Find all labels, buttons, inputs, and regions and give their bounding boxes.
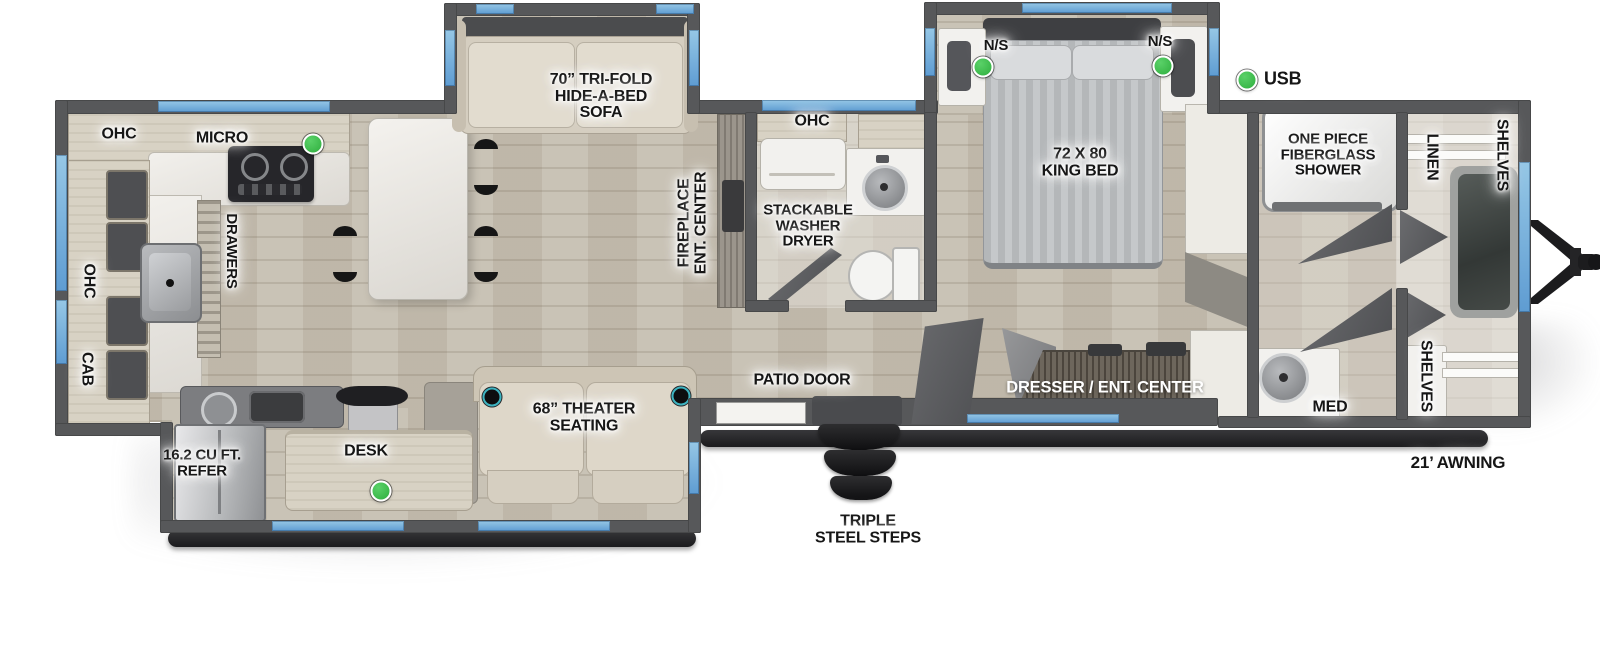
pillow [1072, 45, 1154, 80]
desk-chair [336, 386, 408, 406]
cupholder-icon [483, 388, 502, 407]
wall-bottom [55, 423, 173, 436]
linen-shelf [1402, 134, 1506, 144]
label-theater-seating: 68” THEATER SEATING [533, 401, 635, 434]
window [925, 28, 935, 76]
wardrobe-mirror [1458, 174, 1510, 310]
label-cab: CAB [78, 352, 95, 386]
drain-icon [1279, 373, 1288, 382]
bedroom-divider-wall [1247, 112, 1259, 418]
linen-shelf [1402, 150, 1506, 160]
floorplan-canvas: OHC MICRO OHC CAB DRAWERS 70” TRI-FOLD H… [0, 0, 1600, 652]
window [967, 414, 1119, 423]
window [1519, 162, 1530, 312]
bath-wall [745, 112, 757, 312]
label-linen: LINEN [1423, 133, 1440, 180]
island-chair [474, 226, 498, 282]
window [56, 300, 67, 364]
window [272, 521, 404, 531]
front-bath-wall [1396, 288, 1408, 420]
label-micro: MICRO [196, 131, 248, 148]
usb-indicator [303, 134, 324, 155]
usb-indicator [1153, 56, 1174, 77]
label-med: MED [1313, 400, 1348, 417]
bath-wall [745, 300, 789, 312]
step-platform [812, 396, 902, 426]
front-bath-sink [1259, 353, 1309, 403]
nightstand-inset [1171, 39, 1195, 97]
bath-wall [845, 300, 937, 312]
usb-indicator [371, 481, 392, 502]
steel-step [830, 476, 892, 500]
label-refer: 16.2 CU FT. REFER [163, 447, 241, 478]
label-fireplace-ent-center: FIREPLACE ENT. CENTER [676, 172, 709, 275]
dresser-decor [1088, 344, 1122, 356]
burner-icon [241, 153, 269, 181]
steel-step [824, 450, 896, 476]
window [656, 4, 694, 14]
stove-grate [238, 184, 302, 195]
island-chair [474, 139, 498, 195]
window [1022, 3, 1172, 13]
label-shower: ONE PIECE FIBERGLASS SHOWER [1281, 132, 1376, 179]
door-slide-wall [160, 520, 701, 533]
window [689, 30, 699, 86]
bath-corner-cabinet [858, 114, 927, 150]
sink-cover-icon [201, 392, 237, 428]
drain-icon [880, 183, 888, 191]
label-drawers: DRAWERS [223, 213, 239, 288]
island-chair [333, 226, 357, 282]
theater-footrest [592, 470, 684, 504]
window [762, 100, 916, 111]
cabinet-inset [106, 350, 148, 400]
usb-legend-dot [1237, 70, 1258, 91]
label-ohc-bath: OHC [795, 114, 830, 131]
front-bath-wall [1396, 112, 1408, 210]
label-ohc-kitchen-top: OHC [102, 127, 137, 144]
dresser-decor [1146, 342, 1186, 356]
burner-icon [280, 153, 308, 181]
label-usb-legend: USB [1264, 70, 1301, 89]
window [158, 101, 330, 112]
window [476, 4, 514, 14]
nightstand-inset [947, 41, 971, 91]
front-shelf [1442, 352, 1520, 362]
window [478, 521, 610, 531]
window [56, 155, 67, 291]
toilet-bowl [848, 250, 898, 302]
slide-counter [180, 386, 344, 428]
label-shelves-bottom: SHELVES [1417, 340, 1434, 412]
theater-footrest [487, 470, 579, 504]
label-dresser-ent-center: DRESSER / ENT. CENTER [1006, 379, 1204, 396]
stackable-washer-dryer [760, 138, 846, 190]
bed-headboard [983, 18, 1161, 42]
label-shelves-top: SHELVES [1493, 119, 1510, 191]
usb-indicator [973, 57, 994, 78]
label-awning: 21’ AWNING [1411, 454, 1506, 472]
label-desk: DESK [344, 444, 388, 461]
faucet-icon [166, 279, 174, 287]
griddle-icon [249, 391, 305, 423]
bath-sink [862, 165, 908, 211]
hitch-tongue-icon [1524, 216, 1600, 308]
kitchen-sink [140, 243, 202, 323]
label-nightstand-right: N/S [1148, 34, 1172, 50]
cabinet-inset [106, 170, 148, 220]
label-ohc-kitchen-side: OHC [80, 264, 97, 299]
window [1209, 28, 1219, 76]
bath-wall [924, 112, 937, 312]
label-triple-steel-steps: TRIPLE STEEL STEPS [815, 513, 921, 546]
kitchen-island [368, 118, 468, 300]
patio-door-panel [716, 402, 806, 424]
toilet-tank [892, 247, 920, 303]
faucet-icon [876, 155, 889, 163]
stove-cooktop [228, 146, 314, 202]
label-nightstand-left: N/S [984, 38, 1008, 54]
label-washer-dryer: STACKABLE WASHER DRYER [763, 203, 853, 250]
washer-door-line [769, 173, 835, 176]
front-shelf [1442, 368, 1520, 378]
window [689, 442, 699, 494]
label-king-bed: 72 X 80 KING BED [1042, 146, 1119, 179]
label-sofa: 70” TRI-FOLD HIDE-A-BED SOFA [550, 72, 653, 122]
fireplace-inset [722, 180, 744, 232]
shower-threshold [1272, 202, 1382, 211]
wall-bottom [1218, 416, 1531, 428]
label-patio-door: PATIO DOOR [754, 373, 851, 390]
window [445, 30, 455, 86]
